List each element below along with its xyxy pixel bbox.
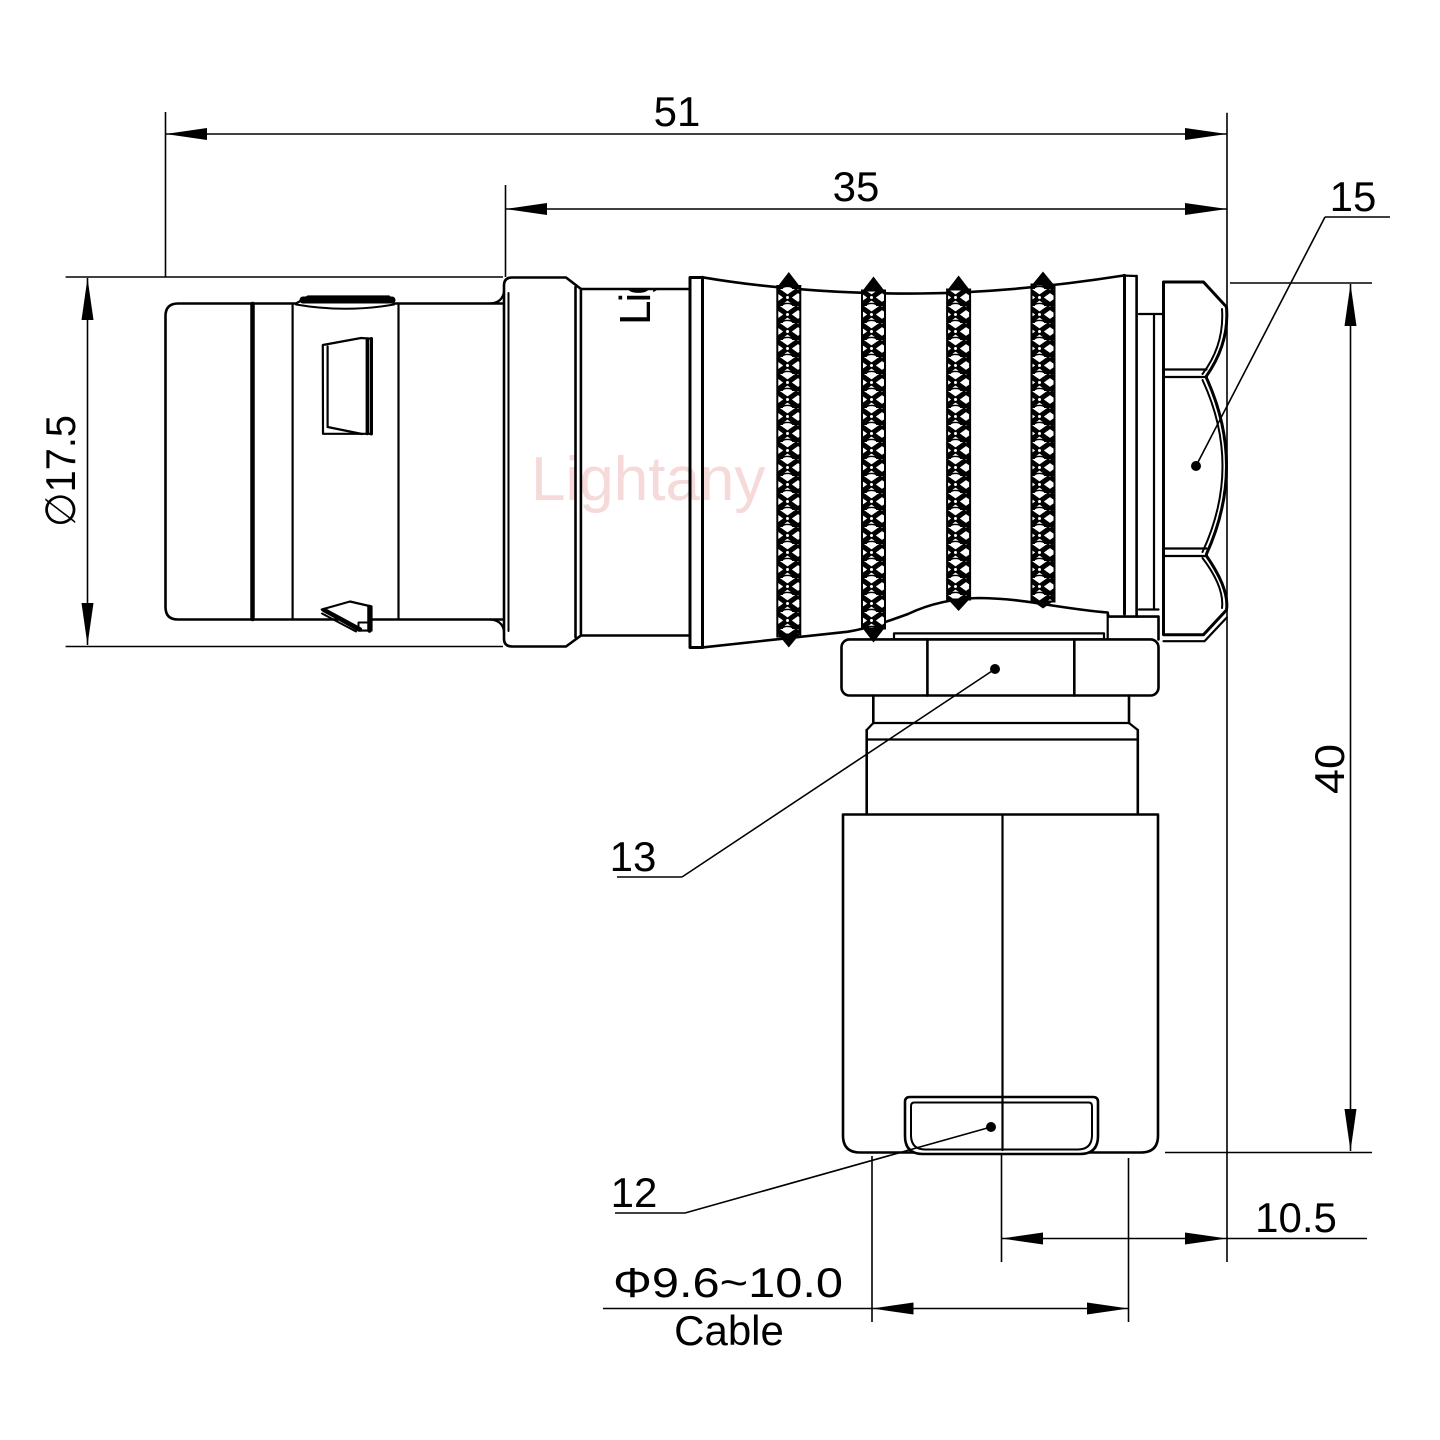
svg-text:51: 51 xyxy=(654,88,701,135)
svg-text:13: 13 xyxy=(610,833,657,880)
svg-text:12: 12 xyxy=(611,1169,658,1216)
svg-text:40: 40 xyxy=(1306,744,1353,794)
svg-text:35: 35 xyxy=(833,163,880,210)
svg-text:Cable: Cable xyxy=(674,1307,784,1354)
svg-text:Lig: Lig xyxy=(611,272,660,325)
svg-text:∅17.5: ∅17.5 xyxy=(37,415,84,527)
svg-text:Lightany: Lightany xyxy=(531,445,765,514)
svg-text:10.5: 10.5 xyxy=(1255,1194,1337,1241)
svg-text:Φ9.6~10.0: Φ9.6~10.0 xyxy=(613,1259,843,1306)
svg-text:15: 15 xyxy=(1330,173,1377,220)
